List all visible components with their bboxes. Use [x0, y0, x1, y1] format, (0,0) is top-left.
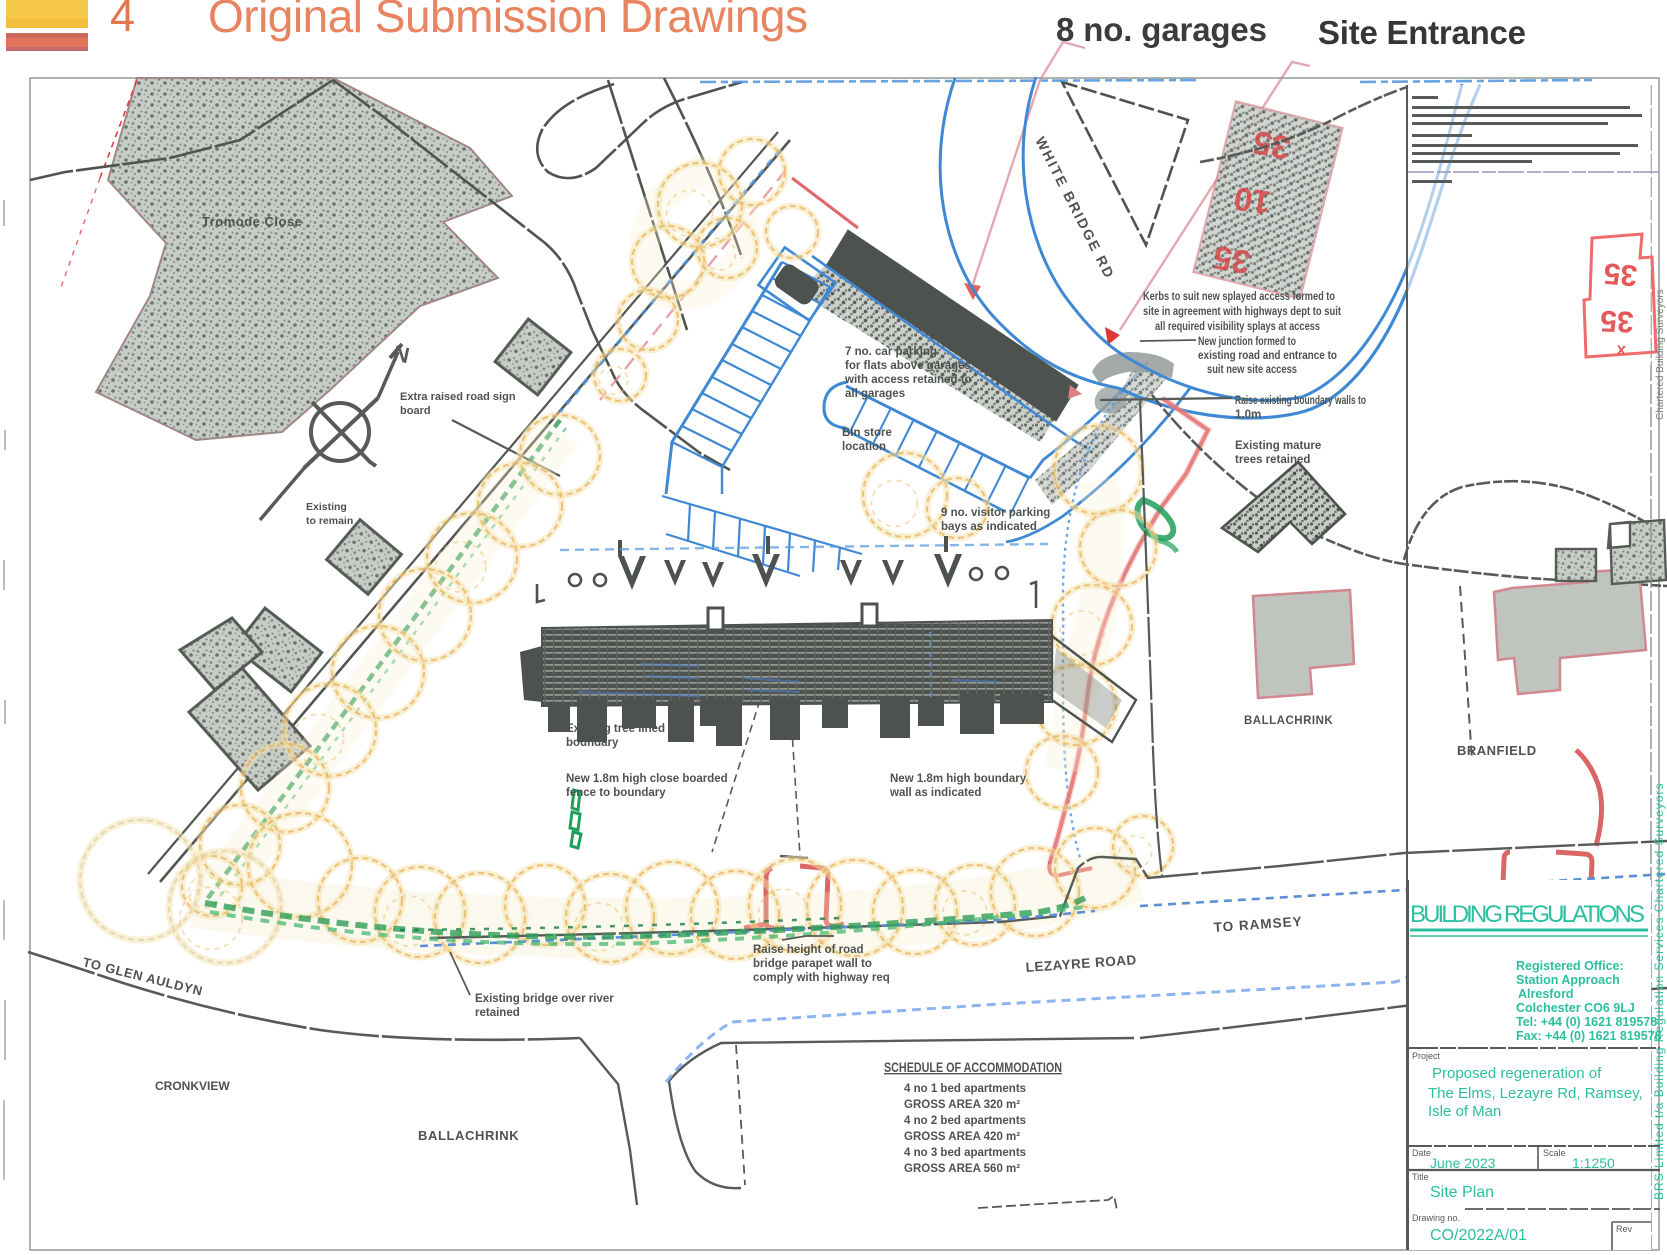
svg-text:4: 4: [110, 0, 135, 41]
svg-text:Chartered Building Surveyors: Chartered Building Surveyors: [1655, 289, 1666, 420]
svg-text:Proposed regeneration of: Proposed regeneration of: [1432, 1065, 1602, 1082]
svg-text:4 no 2 bed apartments: 4 no 2 bed apartments: [904, 1115, 1026, 1127]
svg-text:board: board: [400, 405, 431, 417]
svg-text:10: 10: [1231, 180, 1273, 222]
svg-text:Tromode Close: Tromode Close: [202, 214, 302, 229]
svg-text:Tel: +44 (0) 1621 819578: Tel: +44 (0) 1621 819578: [1516, 1015, 1657, 1029]
svg-text:Existing mature: Existing mature: [1235, 440, 1321, 452]
svg-text:Isle of Man: Isle of Man: [1428, 1103, 1501, 1120]
svg-text:Existing: Existing: [306, 501, 347, 513]
svg-text:bridge parapet wall to: bridge parapet wall to: [753, 958, 872, 970]
svg-text:Colchester CO6 9LJ: Colchester CO6 9LJ: [1516, 1001, 1635, 1015]
svg-text:35: 35: [1211, 239, 1254, 282]
svg-text:SCHEDULE OF ACCOMMODATION: SCHEDULE OF ACCOMMODATION: [884, 1060, 1062, 1075]
svg-text:BALLACHRINK: BALLACHRINK: [1244, 715, 1333, 727]
svg-text:to remain: to remain: [306, 515, 353, 527]
svg-text:BUILDING REGULATIONS: BUILDING REGULATIONS: [1410, 901, 1646, 928]
svg-text:BALLACHRINK: BALLACHRINK: [418, 1128, 519, 1143]
svg-text:trees retained: trees retained: [1235, 454, 1310, 466]
svg-text:Existing bridge over river: Existing bridge over river: [475, 993, 614, 1005]
svg-text:Kerbs to suit new splayed acce: Kerbs to suit new splayed access formed …: [1143, 291, 1335, 303]
svg-text:with access retained to: with access retained to: [844, 374, 972, 386]
svg-text:New junction formed to: New junction formed to: [1198, 336, 1296, 348]
svg-text:Bin store: Bin store: [842, 427, 892, 439]
svg-text:Scale: Scale: [1543, 1148, 1566, 1158]
svg-text:Fax: +44 (0) 1621 819578: Fax: +44 (0) 1621 819578: [1516, 1029, 1662, 1043]
svg-text:New 1.8m high boundary: New 1.8m high boundary: [890, 773, 1027, 785]
svg-text:existing road and entrance to: existing road and entrance to: [1198, 350, 1337, 362]
svg-text:Date: Date: [1412, 1148, 1431, 1158]
svg-text:Project: Project: [1412, 1051, 1441, 1061]
svg-text:9 no. visitor parking: 9 no. visitor parking: [941, 507, 1050, 519]
svg-text:35: 35: [1602, 256, 1638, 292]
svg-text:8 no. garages: 8 no. garages: [1056, 11, 1267, 48]
svg-text:all garages: all garages: [845, 388, 905, 400]
svg-text:1:1250: 1:1250: [1572, 1155, 1615, 1171]
svg-text:Drawing no.: Drawing no.: [1412, 1213, 1460, 1223]
svg-text:wall as indicated: wall as indicated: [889, 787, 981, 799]
svg-text:Raise height of road: Raise height of road: [753, 944, 864, 956]
svg-text:BRS Limited t/a Building Regul: BRS Limited t/a Building Regulation Serv…: [1652, 782, 1666, 1200]
svg-text:GROSS AREA 560 m²: GROSS AREA 560 m²: [904, 1163, 1020, 1175]
svg-text:4 no 3 bed apartments: 4 no 3 bed apartments: [904, 1147, 1026, 1159]
svg-text:GROSS AREA 320 m²: GROSS AREA 320 m²: [904, 1099, 1020, 1111]
svg-text:Rev: Rev: [1616, 1224, 1633, 1234]
svg-text:suit new site access: suit new site access: [1207, 364, 1297, 376]
svg-text:fence to boundary: fence to boundary: [566, 787, 666, 799]
svg-text:Site Entrance: Site Entrance: [1318, 14, 1526, 51]
svg-text:4 no 1 bed apartments: 4 no 1 bed apartments: [904, 1083, 1026, 1095]
svg-text:Alresford: Alresford: [1518, 987, 1574, 1001]
svg-text:Station Approach: Station Approach: [1516, 973, 1620, 987]
svg-text:site in agreement with highway: site in agreement with highways dept to …: [1143, 306, 1341, 318]
svg-text:35: 35: [1600, 304, 1635, 338]
svg-text:Title: Title: [1412, 1172, 1429, 1182]
svg-text:retained: retained: [475, 1007, 520, 1019]
svg-text:1.0m: 1.0m: [1235, 409, 1261, 421]
svg-text:CRONKVIEW: CRONKVIEW: [155, 1079, 230, 1093]
svg-text:for flats above garages: for flats above garages: [845, 360, 971, 372]
svg-text:CO/2022A/01: CO/2022A/01: [1430, 1227, 1527, 1244]
svg-text:Existing tree lined: Existing tree lined: [566, 723, 665, 735]
svg-text:bays as indicated: bays as indicated: [941, 521, 1037, 533]
svg-text:New 1.8m high close boarded: New 1.8m high close boarded: [566, 773, 728, 785]
svg-text:boundary: boundary: [566, 737, 619, 749]
svg-text:Extra raised road sign: Extra raised road sign: [400, 391, 516, 403]
svg-text:Original Submission Drawings: Original Submission Drawings: [208, 0, 808, 42]
svg-text:comply with highway req: comply with highway req: [753, 972, 890, 984]
svg-text:The Elms, Lezayre Rd, Ramsey,: The Elms, Lezayre Rd, Ramsey,: [1428, 1085, 1643, 1102]
svg-text:Raise existing boundary walls: Raise existing boundary walls to: [1235, 395, 1366, 407]
svg-text:GROSS AREA 420 m²: GROSS AREA 420 m²: [904, 1131, 1020, 1143]
svg-text:Site Plan: Site Plan: [1430, 1184, 1494, 1201]
svg-text:7 no. car parking: 7 no. car parking: [845, 346, 937, 358]
svg-text:BRANFIELD: BRANFIELD: [1457, 743, 1537, 758]
svg-text:Registered Office:: Registered Office:: [1516, 959, 1624, 973]
svg-text:June 2023: June 2023: [1430, 1155, 1496, 1171]
svg-text:x: x: [1616, 341, 1626, 359]
svg-text:all required visibility splays: all required visibility splays at access: [1155, 321, 1320, 333]
svg-text:location: location: [842, 441, 886, 453]
